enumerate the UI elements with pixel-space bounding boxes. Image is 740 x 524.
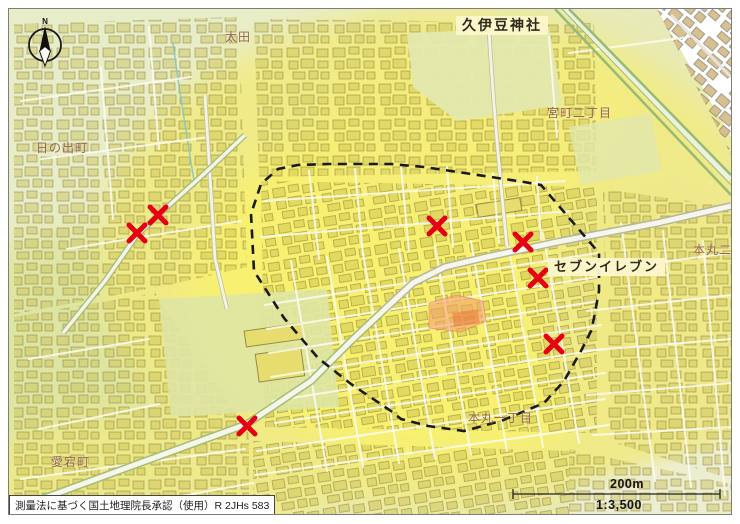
scale-distance: 200m	[610, 477, 644, 491]
attribution-text: 測量法に基づく国土地理院長承認（使用）R 2JHs 583	[9, 495, 275, 515]
map-canvas[interactable]: N 200m 1:3,500 久伊豆神社 セブンイレブン 太田 日の出町 宮町二…	[8, 8, 732, 515]
label-honmaru-1chome: 本丸一丁目	[468, 412, 533, 425]
label-seven-eleven: セブンイレブン	[548, 258, 665, 276]
label-miyacho-2chome: 宮町二丁目	[547, 107, 612, 120]
label-atago-cho: 愛宕町	[51, 456, 90, 469]
label-ota: 太田	[225, 31, 251, 44]
scale-ratio: 1:3,500	[596, 498, 642, 512]
label-hinode-cho: 日の出町	[36, 142, 88, 155]
north-label: N	[42, 17, 48, 26]
screenshot-page: N 200m 1:3,500 久伊豆神社 セブンイレブン 太田 日の出町 宮町二…	[0, 0, 740, 524]
label-honmaru-2chome: 本丸二丁目	[693, 244, 732, 257]
label-hisaizu-shrine: 久伊豆神社	[456, 16, 548, 35]
